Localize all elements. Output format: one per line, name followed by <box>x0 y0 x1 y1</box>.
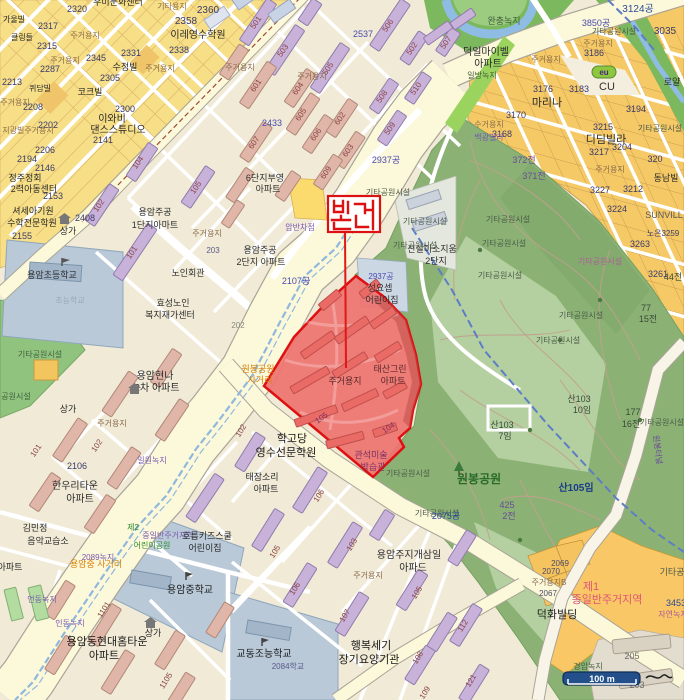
svg-text:2315: 2315 <box>37 41 57 51</box>
svg-text:177: 177 <box>625 407 640 417</box>
svg-text:관석미술: 관석미술 <box>354 450 387 460</box>
svg-text:주거용지: 주거용지 <box>583 39 612 48</box>
svg-text:음악교습소: 음악교습소 <box>27 535 68 546</box>
svg-text:정주정회: 정주정회 <box>8 173 41 183</box>
svg-text:산103: 산103 <box>567 394 590 404</box>
svg-text:203: 203 <box>206 246 220 255</box>
svg-text:3453: 3453 <box>666 598 684 608</box>
svg-text:원봉공원: 원봉공원 <box>241 364 274 374</box>
svg-text:김민정: 김민정 <box>23 522 48 533</box>
svg-text:eu: eu <box>599 68 608 77</box>
svg-text:기타공원시설: 기타공원시설 <box>478 270 522 280</box>
svg-text:15전: 15전 <box>639 314 657 324</box>
svg-text:이레영수학원: 이레영수학원 <box>170 29 225 41</box>
svg-text:클링들: 클링들 <box>11 32 33 42</box>
svg-text:효성노인: 효성노인 <box>156 298 189 308</box>
svg-text:아파트: 아파트 <box>0 562 22 572</box>
svg-text:기타공원시설: 기타공원시설 <box>393 240 437 250</box>
svg-text:아파트: 아파트 <box>474 58 502 70</box>
svg-text:2408: 2408 <box>75 213 95 223</box>
svg-text:용암초등학교: 용암초등학교 <box>27 269 77 280</box>
svg-text:2338: 2338 <box>169 45 189 55</box>
svg-text:노은3259: 노은3259 <box>647 229 680 238</box>
svg-text:성요셉: 성요셉 <box>368 283 393 293</box>
svg-text:2213: 2213 <box>2 77 22 87</box>
svg-text:언동녹지: 언동녹지 <box>27 594 56 604</box>
svg-text:2360: 2360 <box>197 5 220 16</box>
svg-text:산105임: 산105임 <box>558 481 593 494</box>
svg-text:경암녹지: 경암녹지 <box>573 661 602 671</box>
svg-text:기타공원시설: 기타공원시설 <box>536 335 580 345</box>
svg-text:덕화빌딩: 덕화빌딩 <box>537 608 577 621</box>
svg-text:371전: 371전 <box>522 171 545 181</box>
svg-text:아파드: 아파드 <box>399 562 427 574</box>
svg-text:영수선문학원: 영수선문학원 <box>256 446 317 459</box>
svg-text:2433: 2433 <box>262 118 282 128</box>
svg-text:3212: 3212 <box>623 184 643 194</box>
svg-text:77: 77 <box>641 303 651 313</box>
svg-text:2206: 2206 <box>35 145 55 155</box>
svg-text:2317: 2317 <box>38 21 58 31</box>
svg-text:3261: 3261 <box>648 269 668 279</box>
svg-text:2067: 2067 <box>539 589 557 598</box>
svg-text:종일반주거지역: 종일반주거지역 <box>572 592 643 606</box>
svg-text:2320: 2320 <box>67 4 87 14</box>
svg-text:아파트: 아파트 <box>89 649 119 662</box>
svg-text:2전: 2전 <box>502 511 515 521</box>
svg-text:기타공원시설: 기타공원시설 <box>403 216 447 226</box>
svg-text:주거용지B: 주거용지B <box>532 578 567 587</box>
svg-text:원봉공원: 원봉공원 <box>457 472 501 486</box>
svg-text:수거용지: 수거용지 <box>474 120 503 129</box>
svg-text:기타공원시설: 기타공원시설 <box>366 187 410 197</box>
svg-text:용암주공: 용암주공 <box>243 244 276 255</box>
svg-text:상가: 상가 <box>145 628 162 638</box>
svg-text:상가: 상가 <box>60 404 77 414</box>
svg-text:용암동현대홈타운: 용암동현대홈타운 <box>67 634 148 648</box>
svg-text:3263: 3263 <box>630 239 650 249</box>
svg-text:덕일마이벨: 덕일마이벨 <box>463 46 509 58</box>
svg-text:어린이집: 어린이집 <box>365 294 398 305</box>
svg-text:2300: 2300 <box>115 104 135 114</box>
svg-text:동남빌: 동남빌 <box>654 173 679 183</box>
svg-text:3035: 3035 <box>654 26 677 37</box>
svg-text:기타공원시설: 기타공원시설 <box>18 349 62 359</box>
svg-text:10임: 10임 <box>573 404 591 415</box>
svg-text:2358: 2358 <box>175 16 198 27</box>
svg-text:2차 아파트: 2차 아파트 <box>134 382 179 394</box>
svg-text:2075공: 2075공 <box>432 511 460 521</box>
svg-text:6단지부영: 6단지부영 <box>246 173 284 183</box>
svg-text:100 m: 100 m <box>589 674 615 684</box>
svg-text:3215: 3215 <box>593 122 613 132</box>
svg-text:주거용지: 주거용지 <box>595 165 624 174</box>
svg-text:셔세아기원: 셔세아기원 <box>12 206 53 216</box>
svg-text:자연녹지: 자연녹지 <box>658 610 684 619</box>
svg-text:복지재가센터: 복지재가센터 <box>145 310 195 320</box>
svg-text:3217: 3217 <box>589 147 609 157</box>
svg-text:이와비: 이와비 <box>98 113 126 125</box>
svg-text:7임: 7임 <box>498 430 511 441</box>
svg-text:205: 205 <box>624 651 639 661</box>
svg-text:행복세기: 행복세기 <box>351 639 391 652</box>
svg-text:일방녹지: 일방녹지 <box>467 70 496 80</box>
svg-text:3224: 3224 <box>607 204 627 214</box>
svg-text:372전: 372전 <box>512 155 535 165</box>
svg-text:장기요양기관: 장기요양기관 <box>339 653 400 666</box>
svg-text:아파트: 아파트 <box>254 484 279 494</box>
svg-text:2345: 2345 <box>86 53 106 63</box>
svg-text:주거용지: 주거용지 <box>0 98 29 107</box>
svg-text:수정빌: 수정빌 <box>113 62 138 72</box>
svg-text:용암현나: 용암현나 <box>137 370 174 382</box>
svg-text:일원녹지: 일원녹지 <box>137 456 166 465</box>
svg-text:산103: 산103 <box>490 420 513 430</box>
svg-text:기타공원시설: 기타공원시설 <box>386 468 430 478</box>
svg-text:상가: 상가 <box>60 226 77 236</box>
svg-text:우미문화센터: 우미문화센터 <box>93 0 143 7</box>
svg-text:마리나: 마리나 <box>532 96 562 109</box>
svg-text:3183: 3183 <box>569 84 589 94</box>
svg-text:2106: 2106 <box>67 461 87 471</box>
svg-text:3124공: 3124공 <box>622 3 653 15</box>
svg-text:기타공원시설: 기타공원시설 <box>638 123 682 133</box>
svg-text:3227: 3227 <box>590 185 610 195</box>
svg-text:주거용지: 주거용지 <box>50 56 79 65</box>
svg-text:노인회관: 노인회관 <box>171 268 204 278</box>
svg-text:주거용지: 주거용지 <box>225 63 254 72</box>
svg-text:용암중학교: 용암중학교 <box>167 584 213 596</box>
svg-text:2537: 2537 <box>353 29 373 39</box>
svg-text:아파트: 아파트 <box>381 376 406 386</box>
svg-text:3186: 3186 <box>584 48 604 58</box>
svg-text:한우리타운: 한우리타운 <box>52 480 98 492</box>
svg-text:3176: 3176 <box>533 84 553 94</box>
svg-text:태잠소리: 태잠소리 <box>245 472 278 482</box>
svg-text:학고당: 학고당 <box>277 432 307 445</box>
svg-text:어린이집: 어린이집 <box>188 542 221 553</box>
svg-text:2141: 2141 <box>93 135 113 145</box>
svg-text:기타용지: 기타용지 <box>157 2 186 11</box>
svg-text:2937공: 2937공 <box>372 155 400 165</box>
svg-text:코크빌: 코크빌 <box>78 87 103 97</box>
svg-text:CU: CU <box>599 81 615 93</box>
svg-text:용암주지개삼일: 용암주지개삼일 <box>377 549 441 561</box>
svg-text:16전: 16전 <box>622 419 640 429</box>
svg-text:교동조능학교: 교동조능학교 <box>236 648 291 660</box>
svg-text:2단지 아파트: 2단지 아파트 <box>237 257 286 267</box>
svg-text:SUNVILL: SUNVILL <box>645 210 683 220</box>
svg-text:아파트: 아파트 <box>66 493 94 505</box>
svg-text:2089녹지: 2089녹지 <box>82 553 115 562</box>
svg-text:425: 425 <box>499 500 514 510</box>
svg-text:퀴담빌: 퀴담빌 <box>29 83 51 93</box>
svg-text:2146: 2146 <box>35 163 55 173</box>
svg-text:2331: 2331 <box>121 48 141 58</box>
svg-text:주거용지: 주거용지 <box>97 419 126 428</box>
svg-text:2287: 2287 <box>40 64 60 74</box>
svg-text:기타공원시설: 기타공원시설 <box>486 214 530 224</box>
svg-text:공원시설: 공원시설 <box>1 391 30 401</box>
svg-text:2155: 2155 <box>12 231 32 241</box>
svg-text:암반차점: 암반차점 <box>285 222 314 232</box>
svg-text:1단지아마트: 1단지아마트 <box>132 220 178 230</box>
svg-text:아파트: 아파트 <box>256 184 281 194</box>
svg-text:3170: 3170 <box>506 110 526 120</box>
svg-text:2084학교: 2084학교 <box>272 661 305 671</box>
svg-text:202: 202 <box>231 321 245 330</box>
svg-text:3204: 3204 <box>612 142 632 152</box>
svg-text:2305: 2305 <box>100 73 120 83</box>
svg-text:기타공: 기타공 <box>660 567 684 577</box>
svg-text:주거용지: 주거용지 <box>353 571 382 580</box>
svg-text:인동녹지: 인동녹지 <box>55 618 84 628</box>
svg-text:주거용지: 주거용지 <box>145 64 174 73</box>
svg-text:기타공원시설: 기타공원시설 <box>482 238 526 248</box>
svg-text:기타공원시설: 기타공원시설 <box>578 256 622 266</box>
svg-text:사거리: 사거리 <box>248 375 273 385</box>
svg-text:기타공원시설: 기타공원시설 <box>640 417 684 427</box>
svg-text:주거용지: 주거용지 <box>297 72 326 81</box>
svg-text:로얄: 로얄 <box>664 77 681 87</box>
svg-text:지광빌주거용지: 지광빌주거용지 <box>2 125 54 135</box>
svg-text:2107공: 2107공 <box>282 276 310 286</box>
svg-text:2단지: 2단지 <box>425 256 447 266</box>
svg-text:태산그린: 태산그린 <box>373 364 406 374</box>
svg-text:주거용지: 주거용지 <box>70 31 99 40</box>
svg-text:용암주공: 용암주공 <box>138 206 171 217</box>
svg-text:호름키즈스쿨: 호름키즈스쿨 <box>182 531 232 541</box>
svg-text:주거용지: 주거용지 <box>531 55 560 64</box>
svg-text:가울빌: 가울빌 <box>3 14 25 24</box>
svg-text:기타공원시설: 기타공원시설 <box>592 26 636 36</box>
svg-text:박습관: 박습관 <box>361 462 386 472</box>
svg-text:320: 320 <box>647 154 662 164</box>
svg-text:제2: 제2 <box>127 523 139 532</box>
svg-text:2070: 2070 <box>542 567 560 576</box>
svg-text:백광빌라: 백광빌라 <box>474 132 504 142</box>
svg-text:제1: 제1 <box>583 580 599 593</box>
svg-text:수학전문학원: 수학전문학원 <box>7 218 57 228</box>
svg-text:2937공: 2937공 <box>368 272 393 281</box>
svg-text:완충녹지: 완충녹지 <box>487 16 520 26</box>
svg-text:어린이공원: 어린이공원 <box>134 540 171 550</box>
svg-text:초능학교: 초능학교 <box>55 295 84 305</box>
svg-text:3194: 3194 <box>626 104 646 114</box>
svg-text:기타공원시설: 기타공원시설 <box>559 310 603 320</box>
svg-text:주거용지: 주거용지 <box>328 376 361 386</box>
svg-text:2153: 2153 <box>43 191 63 201</box>
svg-text:주거용지: 주거용지 <box>192 229 221 238</box>
